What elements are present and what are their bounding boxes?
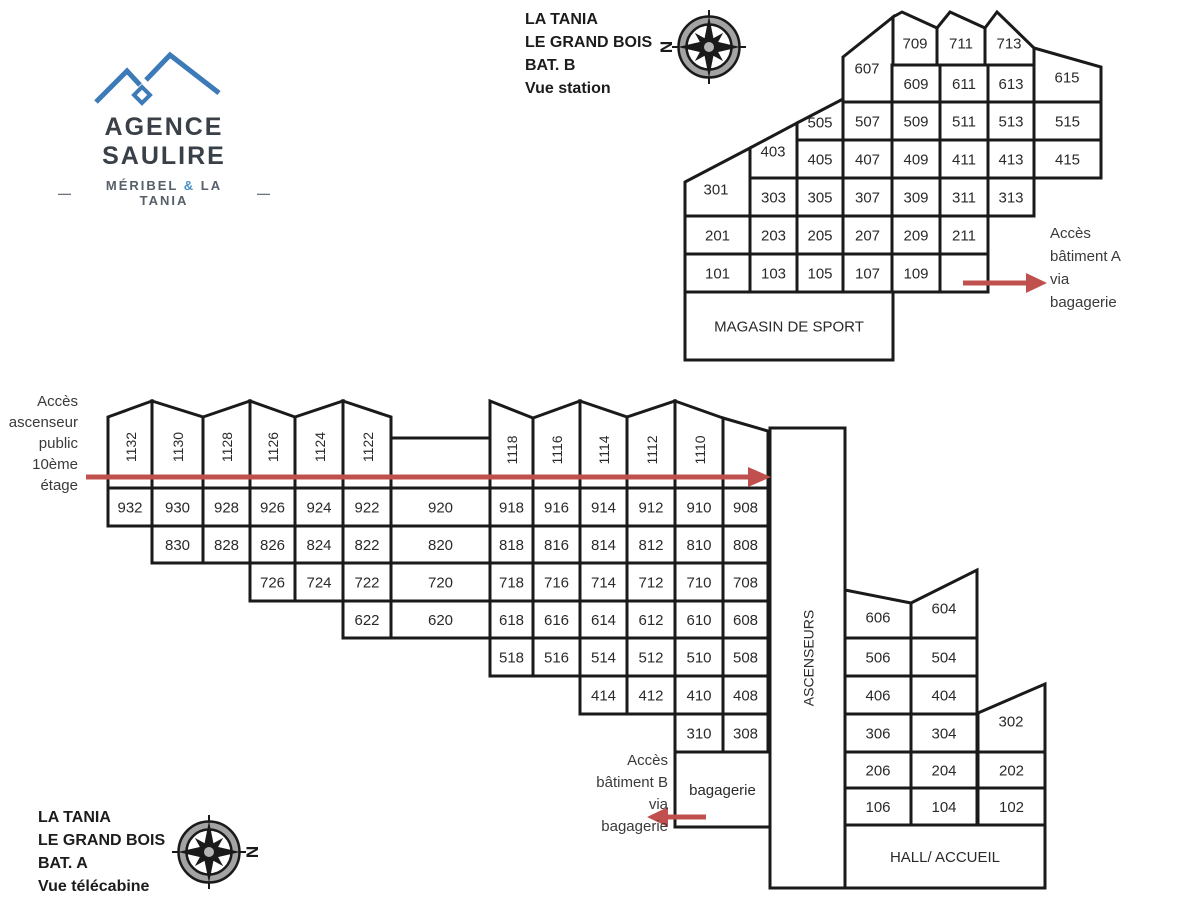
room-a-818-label: 818 xyxy=(499,537,524,554)
room-a-1114-label: 1114 xyxy=(596,435,612,464)
room-b-515-label: 515 xyxy=(1055,114,1080,131)
magasin-de-sport-label: MAGASIN DE SPORT xyxy=(714,319,864,336)
agency-subtitle: — MÉRIBEL & LA TANIA — xyxy=(58,178,270,208)
room-b-109-label: 109 xyxy=(903,266,928,283)
subtitle-dash-right: — xyxy=(257,186,270,201)
room-a-604-label: 604 xyxy=(931,601,956,618)
room-b-309-label: 309 xyxy=(903,190,928,207)
room-a-308-label: 308 xyxy=(733,726,758,743)
room-a-504-label: 504 xyxy=(931,650,956,667)
room-a-914-label: 914 xyxy=(591,500,616,517)
room-b-205-label: 205 xyxy=(807,228,832,245)
subtitle-text: MÉRIBEL & LA TANIA xyxy=(81,178,247,208)
room-a-618-label: 618 xyxy=(499,612,524,629)
room-b-505-label: 505 xyxy=(807,115,832,132)
access-elevator-note: Accès ascenseur public 10ème étage xyxy=(0,391,78,496)
room-b-607 xyxy=(843,17,893,102)
room-a-304-label: 304 xyxy=(931,726,956,743)
room-b-105-label: 105 xyxy=(807,266,832,283)
room-a-206-label: 206 xyxy=(865,763,890,780)
room-a-720-label: 720 xyxy=(428,575,453,592)
room-a-612-label: 612 xyxy=(638,612,663,629)
room-a-908-label: 908 xyxy=(733,500,758,517)
room-b-413-label: 413 xyxy=(998,152,1023,169)
room-b-313-label: 313 xyxy=(998,190,1023,207)
compass-a-north-label: N xyxy=(243,846,262,858)
room-a-712-label: 712 xyxy=(638,575,663,592)
room-a-824-label: 824 xyxy=(306,537,331,554)
room-a-404-label: 404 xyxy=(931,688,956,705)
room-a-1126-label: 1126 xyxy=(265,432,281,462)
ascenseurs-label: ASCENSEURS xyxy=(801,610,817,706)
room-b-403-label: 403 xyxy=(760,144,785,161)
subtitle-dash-left: — xyxy=(58,186,71,201)
room-a-514-label: 514 xyxy=(591,650,616,667)
room-a-1112-label: 1112 xyxy=(644,435,660,464)
room-a-510-label: 510 xyxy=(686,650,711,667)
agency-name: AGENCE SAULIRE xyxy=(58,113,270,171)
hall-accueil-label: HALL/ ACCUEIL xyxy=(890,849,1000,866)
room-b-613-label: 613 xyxy=(998,76,1023,93)
room-a-928-label: 928 xyxy=(214,500,239,517)
room-b-305-label: 305 xyxy=(807,190,832,207)
room-a-918-label: 918 xyxy=(499,500,524,517)
room-a-718-label: 718 xyxy=(499,575,524,592)
room-b-201-label: 201 xyxy=(705,228,730,245)
room-b-513-label: 513 xyxy=(998,114,1023,131)
building-b: 1011031051071092012032052072092113013033… xyxy=(685,12,1101,360)
room-a-1118-label: 1118 xyxy=(504,435,520,464)
room-b-409-label: 409 xyxy=(903,152,928,169)
room-a-518-label: 518 xyxy=(499,650,524,667)
mountain-logo-icon xyxy=(59,40,269,106)
room-a-608-label: 608 xyxy=(733,612,758,629)
room-a-412-label: 412 xyxy=(638,688,663,705)
room-b-405-label: 405 xyxy=(807,152,832,169)
compass-b-north-label: N xyxy=(657,41,676,53)
room-b-415-label: 415 xyxy=(1055,152,1080,169)
ampersand: & xyxy=(184,178,195,193)
room-a-808-label: 808 xyxy=(733,537,758,554)
room-a-512-label: 512 xyxy=(638,650,663,667)
room-a-1132-label: 1132 xyxy=(123,432,139,462)
compass-b-icon: N xyxy=(657,10,747,84)
room-a-922-label: 922 xyxy=(354,500,379,517)
room-a-106-label: 106 xyxy=(865,799,890,816)
room-a-910-label: 910 xyxy=(686,500,711,517)
room-a-508-label: 508 xyxy=(733,650,758,667)
room-a-912-label: 912 xyxy=(638,500,663,517)
room-a-820-label: 820 xyxy=(428,537,453,554)
room-a-302-label: 302 xyxy=(998,714,1023,731)
room-a-924-label: 924 xyxy=(306,500,331,517)
bagagerie-label: bagagerie xyxy=(689,782,756,799)
room-b-307-label: 307 xyxy=(855,190,880,207)
compass-a-icon: N xyxy=(172,815,262,889)
room-a-722-label: 722 xyxy=(354,575,379,592)
room-a-810-label: 810 xyxy=(686,537,711,554)
room-a-610-label: 610 xyxy=(686,612,711,629)
room-a-726-label: 726 xyxy=(260,575,285,592)
room-b-207-label: 207 xyxy=(855,228,880,245)
room-b-711-label: 711 xyxy=(949,36,973,53)
room-a-716-label: 716 xyxy=(544,575,569,592)
room-b-407-label: 407 xyxy=(855,152,880,169)
room-a-104-label: 104 xyxy=(931,799,956,816)
room-a-310-label: 310 xyxy=(686,726,711,743)
room-a-916-label: 916 xyxy=(544,500,569,517)
room-b-713-label: 713 xyxy=(996,36,1021,53)
room-b-615-label: 615 xyxy=(1054,70,1079,87)
room-a-1128-label: 1128 xyxy=(219,432,235,462)
room-a-932-label: 932 xyxy=(117,500,142,517)
room-a-616-label: 616 xyxy=(544,612,569,629)
room-b-507-label: 507 xyxy=(855,114,880,131)
room-b-103-label: 103 xyxy=(761,266,786,283)
room-a-202-label: 202 xyxy=(999,763,1024,780)
room-a-408-label: 408 xyxy=(733,688,758,705)
room-a-614-label: 614 xyxy=(591,612,616,629)
room-a-606-label: 606 xyxy=(865,610,890,627)
room-b-209-label: 209 xyxy=(903,228,928,245)
access-batiment-a-note: Accès bâtiment A via bagagerie xyxy=(1050,222,1190,314)
room-a-1130-label: 1130 xyxy=(170,432,186,462)
room-a-708-label: 708 xyxy=(733,575,758,592)
room-b-709-label: 709 xyxy=(902,36,927,53)
room-b-609-label: 609 xyxy=(903,76,928,93)
room-a-828-label: 828 xyxy=(214,537,239,554)
room-a-1124-label: 1124 xyxy=(312,432,328,462)
room-b-311-label: 311 xyxy=(952,190,976,207)
room-a-204-label: 204 xyxy=(931,763,956,780)
room-a-714-label: 714 xyxy=(591,575,616,592)
room-a-620-label: 620 xyxy=(428,612,453,629)
room-a-unlabeled xyxy=(391,438,490,488)
room-a-1116-label: 1116 xyxy=(549,435,565,464)
room-a-826-label: 826 xyxy=(260,537,285,554)
room-a-1110-label: 1110 xyxy=(692,435,708,464)
room-b-509-label: 509 xyxy=(903,114,928,131)
room-a-830-label: 830 xyxy=(165,537,190,554)
batiment-a-title: LA TANIA LE GRAND BOIS BAT. A Vue téléca… xyxy=(38,806,165,898)
room-b-211-label: 211 xyxy=(952,228,976,245)
room-b-203-label: 203 xyxy=(761,228,786,245)
room-a-812-label: 812 xyxy=(638,537,663,554)
room-a-920-label: 920 xyxy=(428,500,453,517)
room-a-710-label: 710 xyxy=(686,575,711,592)
room-b-unlabeled xyxy=(940,254,988,292)
room-a-814-label: 814 xyxy=(591,537,616,554)
room-a-622-label: 622 xyxy=(354,612,379,629)
room-a-102-label: 102 xyxy=(999,799,1024,816)
room-a-516-label: 516 xyxy=(544,650,569,667)
room-a-506-label: 506 xyxy=(865,650,890,667)
room-a-724-label: 724 xyxy=(306,575,331,592)
room-a-414-label: 414 xyxy=(591,688,616,705)
access-batiment-b-note: Accès bâtiment B via bagagerie xyxy=(530,750,668,838)
room-b-301-label: 301 xyxy=(703,182,728,199)
room-a-406-label: 406 xyxy=(865,688,890,705)
room-a-822-label: 822 xyxy=(354,537,379,554)
room-a-930-label: 930 xyxy=(165,500,190,517)
agency-logo: AGENCE SAULIRE — MÉRIBEL & LA TANIA — xyxy=(58,40,270,208)
room-b-611-label: 611 xyxy=(952,76,976,93)
batiment-b-title: LA TANIA LE GRAND BOIS BAT. B Vue statio… xyxy=(525,8,652,100)
room-b-101-label: 101 xyxy=(705,266,730,283)
room-a-410-label: 410 xyxy=(686,688,711,705)
room-b-607-label: 607 xyxy=(854,61,879,78)
room-b-107-label: 107 xyxy=(855,266,880,283)
room-b-303-label: 303 xyxy=(761,190,786,207)
room-b-511-label: 511 xyxy=(952,114,976,131)
room-a-306-label: 306 xyxy=(865,726,890,743)
room-b-411-label: 411 xyxy=(952,152,976,169)
room-a-816-label: 816 xyxy=(544,537,569,554)
room-a-1122-label: 1122 xyxy=(360,432,376,462)
room-a-926-label: 926 xyxy=(260,500,285,517)
